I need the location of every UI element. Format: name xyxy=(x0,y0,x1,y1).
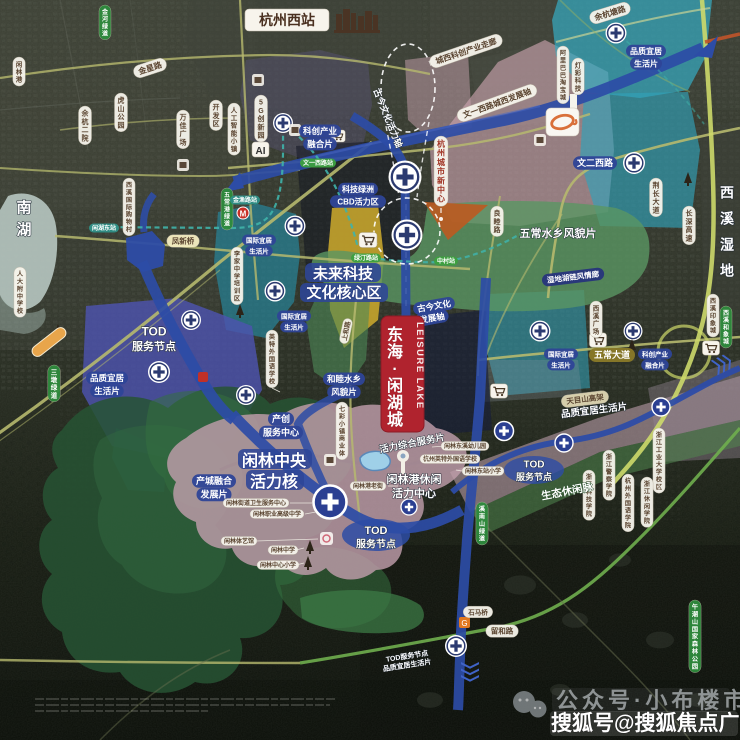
svg-text:闲林东站小学: 闲林东站小学 xyxy=(465,467,501,475)
svg-text:杭: 杭 xyxy=(625,477,632,485)
svg-text:特: 特 xyxy=(269,341,276,349)
svg-text:人: 人 xyxy=(17,270,24,278)
svg-text:山: 山 xyxy=(479,520,485,528)
svg-text:高: 高 xyxy=(686,225,693,234)
svg-text:国际宜居: 国际宜居 xyxy=(281,311,308,320)
svg-text:绿: 绿 xyxy=(51,383,58,392)
svg-text:七: 七 xyxy=(339,405,346,413)
svg-text:山: 山 xyxy=(118,104,125,113)
svg-text:业: 业 xyxy=(656,453,662,461)
svg-text:西: 西 xyxy=(720,185,734,201)
svg-text:闲林中学: 闲林中学 xyxy=(271,546,295,554)
svg-text:校: 校 xyxy=(656,476,663,484)
svg-text:TOD: TOD xyxy=(141,324,166,338)
svg-text:闲: 闲 xyxy=(16,59,23,68)
svg-text:五常大道: 五常大道 xyxy=(594,349,630,360)
svg-text:购: 购 xyxy=(126,211,132,219)
svg-text:区: 区 xyxy=(213,120,220,128)
svg-text:城: 城 xyxy=(560,94,567,102)
svg-text:湖: 湖 xyxy=(16,221,31,238)
svg-text:TOD: TOD xyxy=(364,525,387,537)
svg-text:杭: 杭 xyxy=(437,139,445,149)
svg-text:语: 语 xyxy=(269,363,276,371)
svg-text:广: 广 xyxy=(180,129,187,138)
svg-text:公: 公 xyxy=(692,656,699,663)
svg-text:余: 余 xyxy=(81,109,90,118)
svg-text:发展片: 发展片 xyxy=(199,489,227,500)
svg-text:中: 中 xyxy=(17,292,23,300)
svg-text:潮: 潮 xyxy=(692,611,698,619)
svg-text:李: 李 xyxy=(233,250,241,258)
svg-text:印: 印 xyxy=(710,312,716,320)
svg-text:休: 休 xyxy=(643,495,651,503)
svg-text:园: 园 xyxy=(692,662,698,670)
svg-text:淘: 淘 xyxy=(559,79,566,87)
svg-text:西: 西 xyxy=(126,181,132,189)
svg-text:石马桥: 石马桥 xyxy=(467,607,488,616)
svg-text:金: 金 xyxy=(101,8,109,16)
svg-text:里: 里 xyxy=(560,57,566,65)
svg-text:园: 园 xyxy=(258,131,265,140)
svg-text:人: 人 xyxy=(231,105,238,114)
svg-text:彩: 彩 xyxy=(338,413,346,421)
svg-text:港: 港 xyxy=(16,75,23,84)
svg-text:阿: 阿 xyxy=(560,49,567,57)
svg-text:溪: 溪 xyxy=(710,305,717,313)
svg-text:物: 物 xyxy=(126,218,133,226)
svg-text:新: 新 xyxy=(258,122,265,131)
svg-text:国: 国 xyxy=(692,625,698,633)
svg-text:森: 森 xyxy=(692,640,699,648)
svg-text:溪: 溪 xyxy=(593,311,600,320)
svg-text:中: 中 xyxy=(437,185,445,195)
svg-text:睦: 睦 xyxy=(494,217,501,226)
svg-text:学: 学 xyxy=(625,514,631,522)
svg-text:生活片: 生活片 xyxy=(94,386,120,396)
svg-text:G: G xyxy=(461,619,467,628)
svg-text:服务节点: 服务节点 xyxy=(516,471,552,482)
svg-text:中: 中 xyxy=(234,265,240,273)
svg-text:AI: AI xyxy=(256,146,266,157)
svg-text:湿: 湿 xyxy=(720,237,734,253)
svg-text:市: 市 xyxy=(437,166,445,176)
svg-text:绿: 绿 xyxy=(102,22,109,30)
svg-text:融合片: 融合片 xyxy=(645,360,665,369)
svg-text:留和路: 留和路 xyxy=(491,626,514,636)
svg-text:学: 学 xyxy=(606,483,612,491)
svg-text:生活片: 生活片 xyxy=(551,360,571,369)
svg-text:深: 深 xyxy=(686,217,693,226)
svg-text:附: 附 xyxy=(17,285,24,293)
svg-text:路: 路 xyxy=(494,225,502,234)
svg-text:道: 道 xyxy=(51,390,58,399)
svg-text:产城融合: 产城融合 xyxy=(196,475,233,486)
svg-text:学: 学 xyxy=(17,300,23,308)
svg-text:溪: 溪 xyxy=(723,316,730,324)
svg-text:万: 万 xyxy=(179,114,187,122)
svg-text:五: 五 xyxy=(224,192,230,199)
svg-text:巴: 巴 xyxy=(560,64,566,72)
svg-text:科: 科 xyxy=(575,76,582,85)
svg-text:能: 能 xyxy=(231,128,238,137)
svg-text:5: 5 xyxy=(259,100,263,107)
svg-text:湖: 湖 xyxy=(387,394,403,412)
svg-text:地: 地 xyxy=(720,263,734,279)
svg-text:国际宜居: 国际宜居 xyxy=(548,349,575,358)
svg-text:大: 大 xyxy=(656,461,663,469)
svg-text:长: 长 xyxy=(686,209,694,218)
svg-text:浙: 浙 xyxy=(606,453,613,461)
svg-text:杭州英特外国语学校: 杭州英特外国语学校 xyxy=(423,455,478,463)
svg-text:技: 技 xyxy=(586,495,593,503)
svg-text:文一西路站: 文一西路站 xyxy=(302,159,333,167)
svg-text:杭: 杭 xyxy=(82,117,89,126)
svg-text:溪: 溪 xyxy=(126,189,133,197)
svg-text:闲林港老街: 闲林港老街 xyxy=(353,482,383,490)
svg-text:绿: 绿 xyxy=(479,527,486,535)
svg-text:江: 江 xyxy=(606,461,613,469)
svg-text:宝: 宝 xyxy=(560,86,566,94)
svg-text:午: 午 xyxy=(692,603,698,611)
svg-text:浙: 浙 xyxy=(586,473,593,481)
svg-text:服务节点: 服务节点 xyxy=(132,339,176,353)
svg-text:三: 三 xyxy=(51,368,58,376)
svg-text:闲林东溪幼儿园: 闲林东溪幼儿园 xyxy=(444,442,486,450)
svg-text:林: 林 xyxy=(16,67,23,76)
svg-text:西: 西 xyxy=(710,297,716,305)
svg-text:院: 院 xyxy=(644,517,651,525)
svg-text:闲林体艺馆: 闲林体艺馆 xyxy=(224,537,254,545)
svg-text:南: 南 xyxy=(479,513,485,521)
svg-text:河: 河 xyxy=(102,15,108,23)
svg-text:五常水乡风貌片: 五常水乡风貌片 xyxy=(520,226,597,240)
svg-text:道: 道 xyxy=(102,30,108,38)
svg-text:创: 创 xyxy=(257,114,265,123)
svg-text:校: 校 xyxy=(17,307,24,315)
svg-text:语: 语 xyxy=(625,507,632,515)
svg-text:常: 常 xyxy=(224,198,230,206)
svg-text:州: 州 xyxy=(624,486,631,493)
svg-text:新: 新 xyxy=(437,175,445,185)
svg-text:江: 江 xyxy=(656,439,663,447)
svg-text:LEISURE LAKE: LEISURE LAKE xyxy=(414,322,425,410)
svg-text:生活片: 生活片 xyxy=(284,322,304,331)
svg-text:林: 林 xyxy=(692,648,699,656)
svg-text:浙: 浙 xyxy=(656,431,663,439)
svg-text:国: 国 xyxy=(126,196,132,204)
svg-text:发: 发 xyxy=(212,111,221,120)
svg-text:佳: 佳 xyxy=(180,121,187,130)
svg-text:闲林职业高级中学: 闲林职业高级中学 xyxy=(253,510,301,518)
svg-text:江: 江 xyxy=(644,488,651,496)
svg-text:山: 山 xyxy=(692,618,698,626)
svg-text:镇: 镇 xyxy=(231,144,238,153)
svg-text:生活片: 生活片 xyxy=(249,246,269,255)
svg-text:国: 国 xyxy=(269,355,275,363)
svg-text:道: 道 xyxy=(479,535,486,543)
svg-text:闲: 闲 xyxy=(387,376,403,395)
svg-text:闲林中心小学: 闲林中心小学 xyxy=(260,561,296,569)
svg-text:道: 道 xyxy=(653,205,660,214)
svg-text:大: 大 xyxy=(653,197,660,206)
svg-text:服务中心: 服务中心 xyxy=(263,427,299,438)
svg-text:州: 州 xyxy=(436,149,445,158)
svg-text:工: 工 xyxy=(231,114,238,122)
svg-text:凤新桥: 凤新桥 xyxy=(172,236,195,246)
svg-text:工: 工 xyxy=(656,447,663,454)
svg-text:品质宜居: 品质宜居 xyxy=(90,373,125,383)
svg-text:象: 象 xyxy=(723,331,729,339)
svg-text:训: 训 xyxy=(234,287,240,295)
svg-text:西: 西 xyxy=(723,309,729,317)
svg-text:公: 公 xyxy=(118,113,125,121)
svg-text:生活片: 生活片 xyxy=(634,58,658,68)
svg-text:智: 智 xyxy=(231,121,238,130)
svg-text:杭州西站: 杭州西站 xyxy=(259,12,315,28)
svg-text:灯: 灯 xyxy=(575,60,582,69)
svg-text:园: 园 xyxy=(118,120,125,129)
svg-text:公众号·小布楼市: 公众号·小布楼市 xyxy=(556,688,740,713)
svg-text:闲林港休闲: 闲林港休闲 xyxy=(387,472,442,486)
svg-text:西: 西 xyxy=(593,304,600,312)
svg-text:闲林街道卫生服务中心: 闲林街道卫生服务中心 xyxy=(226,499,286,507)
svg-text:G: G xyxy=(258,108,264,115)
svg-text:墩: 墩 xyxy=(51,375,58,384)
svg-text:闲林中央: 闲林中央 xyxy=(242,451,307,470)
svg-text:科创产业: 科创产业 xyxy=(642,349,669,358)
svg-text:区: 区 xyxy=(656,483,663,491)
svg-text:融合片: 融合片 xyxy=(307,139,333,149)
svg-text:溪: 溪 xyxy=(720,211,735,227)
svg-text:·: · xyxy=(392,361,397,378)
svg-text:小: 小 xyxy=(338,420,346,428)
svg-text:活力中心: 活力中心 xyxy=(392,486,436,500)
svg-text:体: 体 xyxy=(339,450,346,458)
svg-text:广: 广 xyxy=(593,319,600,328)
svg-text:长: 长 xyxy=(653,189,661,198)
svg-text:城: 城 xyxy=(723,338,729,346)
svg-text:溪: 溪 xyxy=(479,505,486,513)
svg-text:外: 外 xyxy=(269,348,276,356)
svg-text:场: 场 xyxy=(593,326,600,335)
svg-text:CBD活力区: CBD活力区 xyxy=(337,196,378,206)
svg-text:活力核: 活力核 xyxy=(250,472,298,491)
svg-text:校: 校 xyxy=(269,378,276,386)
svg-text:家: 家 xyxy=(692,633,699,641)
svg-text:培: 培 xyxy=(234,280,241,288)
svg-text:未来科技: 未来科技 xyxy=(312,264,374,282)
svg-text:外: 外 xyxy=(625,492,632,500)
svg-text:和: 和 xyxy=(722,323,729,331)
svg-text:搜狐号@搜狐焦点广安站: 搜狐号@搜狐焦点广安站 xyxy=(551,711,740,735)
svg-text:家: 家 xyxy=(234,258,241,266)
svg-text:商: 商 xyxy=(339,435,345,443)
svg-text:绿汀路站: 绿汀路站 xyxy=(354,254,378,262)
svg-text:院: 院 xyxy=(586,510,593,518)
svg-text:英: 英 xyxy=(269,333,276,341)
svg-text:场: 场 xyxy=(180,137,187,146)
svg-text:业: 业 xyxy=(339,442,345,450)
svg-text:南: 南 xyxy=(16,198,31,216)
svg-text:村: 村 xyxy=(126,226,133,234)
svg-text:国际宜居: 国际宜居 xyxy=(246,235,273,244)
svg-text:镇: 镇 xyxy=(339,427,346,435)
svg-text:品质宜居: 品质宜居 xyxy=(630,46,662,56)
svg-text:学: 学 xyxy=(234,272,240,280)
svg-text:科技绿洲: 科技绿洲 xyxy=(342,184,374,194)
svg-text:察: 察 xyxy=(606,475,613,483)
svg-text:绿: 绿 xyxy=(224,213,231,221)
svg-text:心: 心 xyxy=(437,194,445,204)
svg-text:巴: 巴 xyxy=(560,71,566,79)
svg-text:警: 警 xyxy=(605,468,613,476)
svg-text:文化核心区: 文化核心区 xyxy=(306,283,381,301)
svg-text:大: 大 xyxy=(17,278,24,286)
svg-text:城: 城 xyxy=(437,157,445,167)
svg-text:彩: 彩 xyxy=(574,68,582,77)
svg-text:二: 二 xyxy=(82,126,89,134)
svg-text:和睦水乡: 和睦水乡 xyxy=(327,374,361,384)
svg-text:荆: 荆 xyxy=(653,181,660,190)
svg-text:良: 良 xyxy=(494,209,501,218)
svg-text:闲: 闲 xyxy=(644,502,650,510)
svg-text:际: 际 xyxy=(126,203,133,211)
svg-text:学: 学 xyxy=(269,370,275,378)
svg-text:中村站: 中村站 xyxy=(437,257,455,265)
svg-text:港: 港 xyxy=(224,205,231,213)
svg-text:服务节点: 服务节点 xyxy=(356,538,396,551)
svg-text:院: 院 xyxy=(82,133,89,142)
svg-text:小: 小 xyxy=(230,136,238,145)
svg-text:开: 开 xyxy=(213,104,220,112)
svg-text:学: 学 xyxy=(586,503,592,511)
svg-text:技: 技 xyxy=(575,83,582,92)
svg-text:金渔路站: 金渔路站 xyxy=(232,196,257,204)
svg-text:城: 城 xyxy=(710,327,717,335)
svg-text:浙: 浙 xyxy=(644,480,651,488)
svg-text:东: 东 xyxy=(387,325,403,344)
svg-text:产创: 产创 xyxy=(272,413,290,424)
svg-text:科创产业: 科创产业 xyxy=(303,126,338,136)
svg-text:文二西路: 文二西路 xyxy=(576,157,614,168)
svg-text:学: 学 xyxy=(656,468,662,476)
svg-text:城: 城 xyxy=(387,411,403,429)
svg-text:院: 院 xyxy=(606,490,613,498)
svg-text:闲湖东站: 闲湖东站 xyxy=(92,224,116,232)
svg-text:海: 海 xyxy=(387,342,403,361)
svg-text:风貌片: 风貌片 xyxy=(331,387,357,397)
svg-text:速: 速 xyxy=(686,233,693,242)
svg-text:学: 学 xyxy=(644,510,650,518)
svg-text:国: 国 xyxy=(625,499,631,507)
svg-text:TOD: TOD xyxy=(524,460,545,471)
svg-text:道: 道 xyxy=(224,220,230,228)
svg-text:区: 区 xyxy=(234,295,241,303)
svg-text:M: M xyxy=(240,210,247,219)
svg-text:虎: 虎 xyxy=(118,96,125,105)
svg-text:院: 院 xyxy=(625,522,632,530)
svg-text:象: 象 xyxy=(710,319,717,327)
